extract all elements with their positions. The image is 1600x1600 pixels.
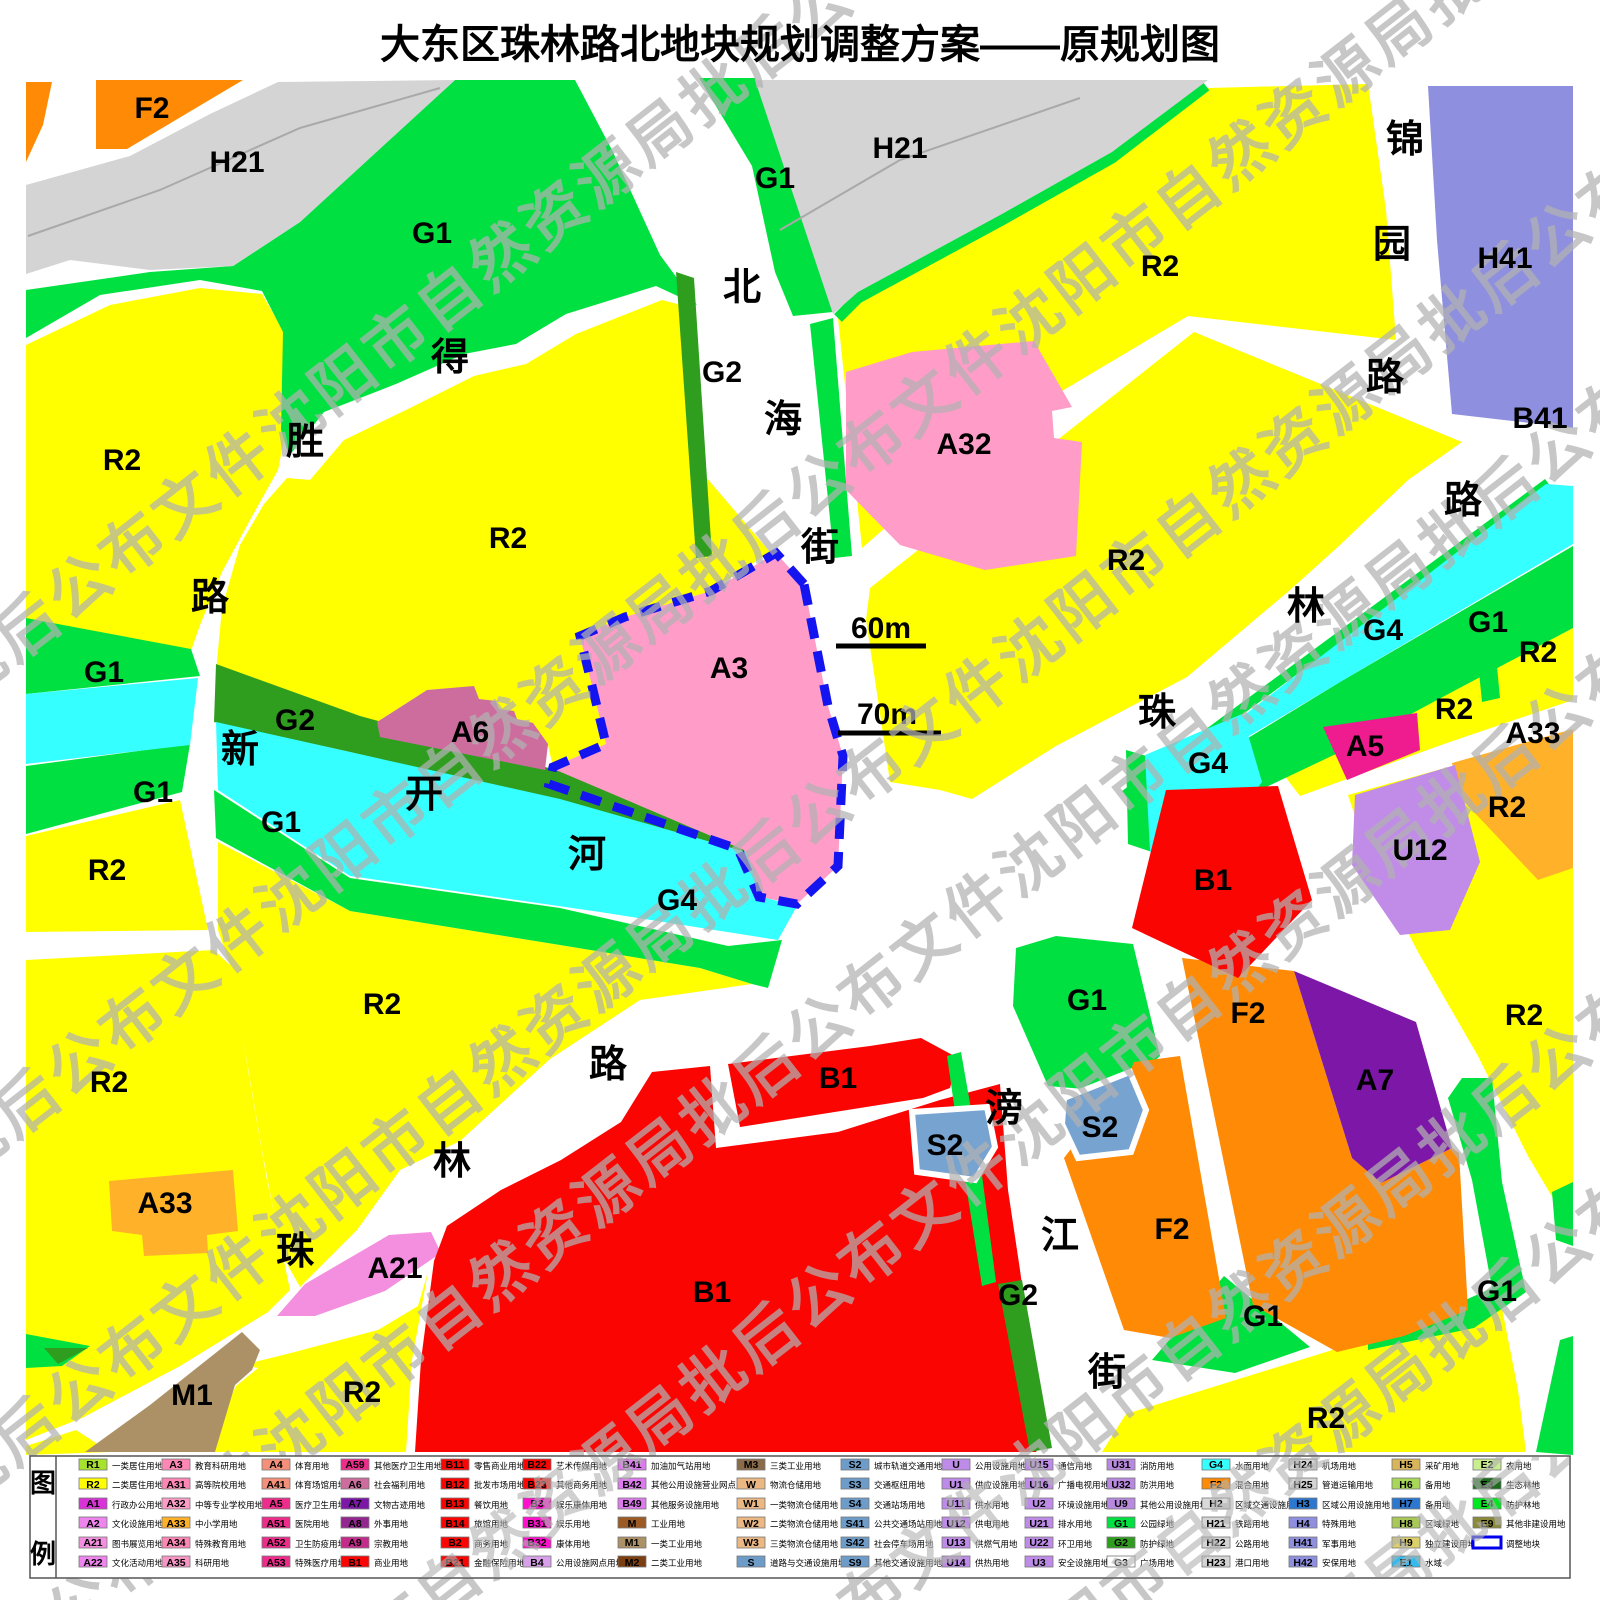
svg-text:U31: U31	[1111, 1459, 1130, 1471]
svg-text:A41: A41	[266, 1479, 285, 1491]
svg-text:G1: G1	[1243, 1300, 1283, 1333]
svg-text:交通枢纽用地: 交通枢纽用地	[874, 1480, 926, 1490]
svg-text:一类居住用地: 一类居住用地	[112, 1461, 164, 1471]
svg-text:A8: A8	[348, 1518, 362, 1530]
svg-text:U: U	[952, 1459, 960, 1471]
svg-text:一类工业用地: 一类工业用地	[651, 1539, 703, 1549]
svg-text:F2: F2	[1154, 1213, 1189, 1246]
svg-text:G1: G1	[412, 217, 452, 250]
svg-text:S2: S2	[849, 1459, 862, 1471]
svg-text:B41: B41	[1512, 402, 1567, 435]
svg-text:S: S	[747, 1557, 754, 1569]
svg-text:A7: A7	[1356, 1064, 1394, 1097]
svg-text:大东区珠林路北地块规划调整方案——原规划图: 大东区珠林路北地块规划调整方案——原规划图	[380, 23, 1220, 67]
svg-text:S2: S2	[1082, 1111, 1119, 1144]
svg-text:B1: B1	[348, 1557, 362, 1569]
svg-text:B12: B12	[445, 1479, 464, 1491]
svg-text:供热用地: 供热用地	[975, 1558, 1010, 1568]
svg-text:A59: A59	[345, 1459, 364, 1471]
svg-text:G1: G1	[1114, 1518, 1128, 1530]
svg-text:G4: G4	[1209, 1459, 1223, 1471]
svg-text:A34: A34	[166, 1537, 185, 1549]
svg-text:A9: A9	[348, 1537, 362, 1549]
svg-text:R2: R2	[1107, 544, 1145, 577]
svg-text:A53: A53	[266, 1557, 285, 1569]
svg-text:A33: A33	[137, 1187, 192, 1220]
svg-text:调整地块: 调整地块	[1506, 1539, 1541, 1549]
svg-text:A7: A7	[348, 1498, 362, 1510]
svg-text:R2: R2	[103, 444, 141, 477]
svg-text:G1: G1	[261, 806, 301, 839]
svg-text:A32: A32	[166, 1498, 185, 1510]
svg-text:S2: S2	[927, 1129, 964, 1162]
svg-text:体育场馆用地: 体育场馆用地	[295, 1480, 347, 1490]
svg-text:R2: R2	[1519, 636, 1557, 669]
svg-text:路: 路	[589, 1044, 628, 1086]
svg-text:R2: R2	[88, 854, 126, 887]
svg-text:B14: B14	[445, 1518, 464, 1530]
svg-text:三类物流仓储用地: 三类物流仓储用地	[770, 1539, 839, 1549]
svg-text:B49: B49	[622, 1498, 641, 1510]
svg-text:江: 江	[1041, 1215, 1079, 1257]
svg-text:采矿用地: 采矿用地	[1425, 1461, 1460, 1471]
svg-text:二类工业用地: 二类工业用地	[651, 1558, 703, 1568]
svg-text:M: M	[628, 1518, 637, 1530]
svg-text:特殊医疗用地: 特殊医疗用地	[295, 1558, 347, 1568]
svg-text:行政办公用地: 行政办公用地	[112, 1500, 164, 1510]
svg-text:U21: U21	[1029, 1518, 1048, 1530]
svg-text:G2: G2	[702, 356, 742, 389]
svg-text:港口用地: 港口用地	[1235, 1558, 1270, 1568]
svg-text:文物古迹用地: 文物古迹用地	[374, 1500, 426, 1510]
svg-text:S4: S4	[849, 1498, 862, 1510]
svg-text:A31: A31	[166, 1479, 185, 1491]
svg-text:A33: A33	[1505, 717, 1560, 750]
svg-text:物流仓储用地: 物流仓储用地	[770, 1480, 822, 1490]
svg-text:R2: R2	[86, 1479, 100, 1491]
svg-text:S3: S3	[849, 1479, 862, 1491]
svg-text:得: 得	[431, 337, 469, 379]
svg-text:锦: 锦	[1386, 119, 1424, 161]
svg-text:新: 新	[221, 729, 259, 771]
svg-text:例: 例	[30, 1539, 56, 1569]
svg-text:文化活动用地: 文化活动用地	[112, 1558, 164, 1568]
svg-text:高等院校用地: 高等院校用地	[195, 1480, 247, 1490]
svg-text:G1: G1	[84, 656, 124, 689]
svg-text:特殊用地: 特殊用地	[1322, 1519, 1357, 1529]
svg-text:G2: G2	[998, 1279, 1038, 1312]
svg-text:备用地: 备用地	[1425, 1480, 1451, 1490]
svg-text:R2: R2	[1307, 1402, 1345, 1435]
svg-text:一类物流仓储用地: 一类物流仓储用地	[770, 1500, 839, 1510]
svg-text:中小学用地: 中小学用地	[195, 1519, 238, 1529]
svg-text:林: 林	[433, 1141, 471, 1183]
svg-text:珠: 珠	[1138, 692, 1177, 734]
svg-text:环卫用地: 环卫用地	[1058, 1539, 1093, 1549]
svg-text:道路与交通设施用地: 道路与交通设施用地	[770, 1558, 847, 1568]
svg-text:H7: H7	[1399, 1498, 1413, 1510]
svg-text:60m: 60m	[851, 612, 911, 645]
svg-text:R2: R2	[343, 1376, 381, 1409]
svg-text:A35: A35	[166, 1557, 185, 1569]
svg-text:U32: U32	[1111, 1479, 1130, 1491]
svg-text:B1: B1	[693, 1276, 731, 1309]
svg-text:M3: M3	[744, 1459, 759, 1471]
svg-text:路: 路	[191, 577, 230, 619]
svg-text:B1: B1	[1194, 864, 1232, 897]
svg-text:三类工业用地: 三类工业用地	[770, 1461, 822, 1471]
svg-text:B1: B1	[819, 1062, 857, 1095]
svg-text:G1: G1	[133, 776, 173, 809]
svg-text:H21: H21	[872, 132, 927, 165]
svg-text:H42: H42	[1293, 1557, 1312, 1569]
svg-text:A22: A22	[83, 1557, 102, 1569]
svg-text:教育科研用地: 教育科研用地	[195, 1461, 247, 1471]
svg-text:G1: G1	[1468, 606, 1508, 639]
svg-text:胜: 胜	[286, 421, 324, 463]
svg-text:W2: W2	[743, 1518, 759, 1530]
svg-text:U9: U9	[1114, 1498, 1128, 1510]
svg-text:U22: U22	[1029, 1537, 1048, 1549]
svg-text:A6: A6	[348, 1479, 362, 1491]
svg-text:二类居住用地: 二类居住用地	[112, 1480, 164, 1490]
svg-text:特殊教育用地: 特殊教育用地	[195, 1539, 247, 1549]
svg-text:科研用地: 科研用地	[195, 1558, 230, 1568]
svg-text:A6: A6	[451, 716, 489, 749]
svg-text:区域公用设施用地: 区域公用设施用地	[1322, 1500, 1391, 1510]
svg-text:排水用地: 排水用地	[1058, 1519, 1093, 1529]
svg-text:G4: G4	[1188, 747, 1228, 780]
svg-text:G1: G1	[1477, 1275, 1517, 1308]
svg-text:U3: U3	[1032, 1557, 1046, 1569]
svg-text:W3: W3	[743, 1537, 759, 1549]
svg-text:医院用地: 医院用地	[295, 1519, 330, 1529]
svg-text:R2: R2	[363, 988, 401, 1021]
svg-text:F2: F2	[1230, 997, 1265, 1030]
svg-text:G2: G2	[275, 704, 315, 737]
svg-text:A21: A21	[367, 1252, 422, 1285]
svg-text:A1: A1	[86, 1498, 100, 1510]
svg-text:H5: H5	[1399, 1459, 1413, 1471]
svg-text:A3: A3	[169, 1459, 183, 1471]
svg-text:环境设施用地: 环境设施用地	[1058, 1500, 1110, 1510]
svg-text:G4: G4	[1363, 614, 1403, 647]
svg-text:其他医疗卫生用地: 其他医疗卫生用地	[374, 1461, 443, 1471]
svg-text:路: 路	[1366, 357, 1405, 399]
svg-text:S41: S41	[846, 1518, 865, 1530]
svg-text:中等专业学校用地: 中等专业学校用地	[195, 1500, 264, 1510]
svg-text:H6: H6	[1399, 1479, 1413, 1491]
svg-text:工业用地: 工业用地	[651, 1519, 686, 1529]
svg-text:珠: 珠	[276, 1231, 315, 1273]
svg-text:军事用地: 军事用地	[1322, 1539, 1357, 1549]
svg-text:消防用地: 消防用地	[1140, 1461, 1175, 1471]
svg-text:A33: A33	[166, 1518, 185, 1530]
svg-text:G4: G4	[657, 884, 697, 917]
svg-text:路: 路	[1444, 480, 1483, 522]
svg-text:H41: H41	[1477, 242, 1532, 275]
svg-text:城市轨道交通用地: 城市轨道交通用地	[874, 1461, 943, 1471]
svg-text:公用设施网点用地: 公用设施网点用地	[556, 1558, 625, 1568]
svg-text:M1: M1	[625, 1537, 640, 1549]
svg-text:开: 开	[405, 774, 443, 816]
svg-text:医疗卫生用地: 医疗卫生用地	[295, 1500, 347, 1510]
svg-text:交通站场用地: 交通站场用地	[874, 1500, 926, 1510]
svg-text:H21: H21	[209, 146, 264, 179]
svg-text:林: 林	[1287, 586, 1325, 628]
svg-text:F2: F2	[134, 92, 169, 125]
svg-text:B13: B13	[445, 1498, 464, 1510]
svg-text:宗教用地: 宗教用地	[374, 1539, 409, 1549]
svg-text:图书展览用地: 图书展览用地	[112, 1539, 164, 1549]
svg-text:A5: A5	[1346, 730, 1384, 763]
svg-text:管道运输用地: 管道运输用地	[1322, 1480, 1374, 1490]
svg-text:商业用地: 商业用地	[374, 1558, 409, 1568]
svg-text:A32: A32	[936, 428, 991, 461]
svg-text:其他服务设施用地: 其他服务设施用地	[651, 1500, 720, 1510]
svg-text:R2: R2	[1141, 250, 1179, 283]
svg-text:滂: 滂	[985, 1088, 1023, 1130]
svg-text:海: 海	[764, 399, 802, 441]
svg-text:R2: R2	[1435, 693, 1473, 726]
svg-text:A3: A3	[710, 652, 748, 685]
svg-text:河: 河	[568, 834, 606, 876]
svg-text:M2: M2	[625, 1557, 640, 1569]
svg-text:G1: G1	[755, 162, 795, 195]
svg-text:体育用地: 体育用地	[295, 1461, 330, 1471]
svg-text:M1: M1	[171, 1379, 213, 1412]
svg-text:H4: H4	[1296, 1518, 1310, 1530]
svg-text:R2: R2	[1505, 999, 1543, 1032]
svg-text:A52: A52	[266, 1537, 285, 1549]
svg-text:外事用地: 外事用地	[374, 1519, 409, 1529]
svg-text:B11: B11	[446, 1459, 465, 1471]
svg-text:文化设施用地: 文化设施用地	[112, 1519, 164, 1529]
svg-text:图: 图	[30, 1468, 56, 1498]
svg-text:H41: H41	[1293, 1537, 1312, 1549]
svg-text:二类物流仓储用地: 二类物流仓储用地	[770, 1519, 839, 1529]
svg-text:S42: S42	[846, 1537, 865, 1549]
svg-text:U12: U12	[1392, 834, 1447, 867]
svg-text:W: W	[746, 1479, 756, 1491]
svg-text:R1: R1	[86, 1459, 100, 1471]
svg-text:防洪用地: 防洪用地	[1140, 1480, 1175, 1490]
svg-text:G1: G1	[1067, 984, 1107, 1017]
svg-text:W1: W1	[743, 1498, 759, 1510]
svg-text:街: 街	[800, 527, 839, 569]
svg-text:R2: R2	[90, 1066, 128, 1099]
svg-text:R2: R2	[1488, 791, 1526, 824]
svg-text:A51: A51	[266, 1518, 285, 1530]
svg-text:A2: A2	[86, 1518, 100, 1530]
svg-text:卫生防疫用地: 卫生防疫用地	[295, 1539, 347, 1549]
svg-text:园: 园	[1373, 224, 1411, 266]
svg-text:R2: R2	[489, 522, 527, 555]
svg-text:北: 北	[723, 267, 761, 309]
svg-text:A4: A4	[269, 1459, 283, 1471]
svg-text:街: 街	[1087, 1352, 1126, 1394]
svg-text:A21: A21	[83, 1537, 102, 1549]
svg-text:零售商业用地: 零售商业用地	[474, 1461, 526, 1471]
svg-text:社会福利用地: 社会福利用地	[374, 1480, 426, 1490]
svg-text:A5: A5	[269, 1498, 283, 1510]
